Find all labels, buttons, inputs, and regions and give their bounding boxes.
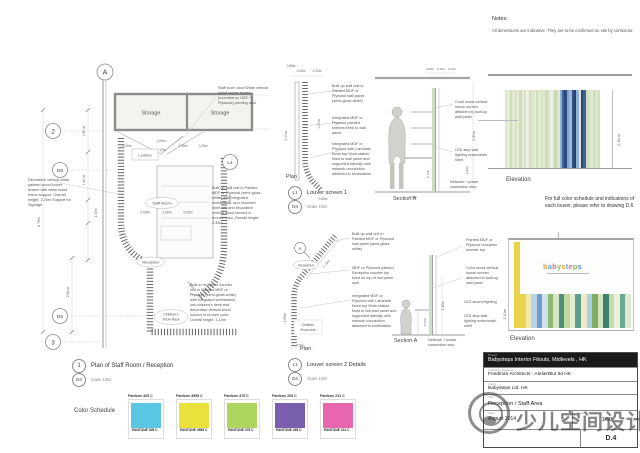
color-swatch-row: Pantone 305 CPANTONE 305 CPantone 3955 C… [128, 394, 356, 439]
elevation1-label: Elevation [506, 177, 531, 183]
color-schedule-label: Color Schedule [74, 408, 115, 414]
dim-text: 0.65M [140, 211, 149, 215]
screen1-section-label: Section A [393, 196, 416, 202]
screen2-note-led-strip: LED strip wall lighting underneath shelf [464, 314, 500, 329]
viewport-title-text: Louver screen 2 Details [307, 362, 366, 368]
project-value: Babysteps Interior Fitouts, Midlevels , … [488, 357, 637, 363]
dim-text: 0.65m [287, 64, 296, 68]
grid-marker-d5: D5 [57, 314, 63, 320]
screen1-note-louver: Color wood vertical louver screen attach… [455, 100, 491, 120]
elevation2-label: Elevation [510, 336, 535, 342]
viewport-scale-text: Scale 1/50 [307, 376, 366, 381]
pantone-swatch-name: PANTONE 375 C [228, 429, 256, 433]
viewport-number-circle: L1 [288, 186, 302, 200]
plan-note-reception-unit: Built-in reception counter unit in Paint… [190, 283, 238, 323]
dim-text: 0.72m [423, 317, 427, 326]
screen2-note-led-accent: LED accent lighting [464, 300, 500, 305]
elevation1-dim: 2.30 m [616, 134, 621, 146]
viewport-sheet-circle: D4 [288, 372, 302, 386]
dim-text: 0.06m [426, 67, 435, 71]
screen2-note-painted-top: Painted MDF or Plywood reception counter… [466, 238, 504, 253]
dim-text: 1.60m [156, 139, 166, 143]
viewport-scale-text: Scale 1/50 [307, 204, 347, 209]
dim-text: 0.80 m [82, 126, 86, 137]
pantone-swatch: Pantone 305 CPANTONE 305 C [128, 394, 164, 439]
dim-text: 1.15m [94, 208, 98, 217]
screen2-note-louver: Color wood vertical louver screen attach… [466, 266, 504, 286]
pantone-swatch-color [179, 403, 209, 428]
dim-text: 0.72m [426, 169, 430, 178]
dim-text: 6.70m [37, 217, 41, 227]
elevation1-floor-line [488, 168, 632, 169]
dim-text: 0.05m [183, 211, 192, 215]
screen1-note-workstation: Integrated MDF or Plywood with Laminate … [332, 142, 372, 177]
dim-text: 1.60 m [82, 175, 86, 186]
elevation2-dim: 1.10m [502, 309, 507, 320]
screen2-plan-label: Plan [300, 346, 311, 352]
pantone-swatch-label: Pantone 375 C [224, 394, 260, 398]
dim-text: 0.13m [437, 67, 446, 71]
dim-text: 0.25m [179, 144, 188, 148]
louver-stripe [598, 90, 600, 168]
elevation1-stripes [505, 90, 600, 168]
dim-text: 0.25m [199, 144, 208, 148]
pantone-swatch-color [131, 403, 161, 428]
plan-note-staff-door: Staff room door White vertical wood louv… [218, 86, 268, 106]
room-label-storage-1: Storage [142, 111, 161, 117]
dim-text: 0.24m [448, 67, 457, 71]
viewport-scale-text: Scale 1/50 [91, 377, 173, 382]
pantone-swatch-card: PANTONE 265 C [272, 399, 308, 439]
viewport-number-circle: 1 [72, 359, 86, 373]
full-color-note: For full color schedule and indications … [545, 196, 635, 210]
room-label-show-rack-1: Children [302, 323, 314, 327]
grid-marker-a: A [103, 70, 108, 77]
pantone-swatch-name: PANTONE 231 C [324, 429, 352, 433]
screen1-plan-label: Plan [286, 174, 297, 180]
room-label-reception: Reception [142, 261, 159, 265]
pantone-swatch: Pantone 231 CPANTONE 231 C [320, 394, 356, 439]
section1-louver-face [432, 88, 435, 192]
babysteps-logo: babysteps [543, 262, 582, 271]
screen2-viewport-title: L1 Louver screen 2 Details D4 Scale 1/50 [288, 358, 366, 385]
pantone-swatch-name: PANTONE 265 C [276, 429, 304, 433]
plan-viewport-title: 1 Plan of Staff Room / Reception D4 Scal… [72, 359, 173, 386]
pantone-swatch-name: PANTONE 305 C [132, 429, 160, 433]
grid-marker-3: 3 [51, 340, 55, 347]
room-label-show-rack-1: Children's [164, 313, 179, 317]
viewport-title-text: Plan of Staff Room / Reception [91, 363, 173, 369]
screen1-note-led: LED strip wall lighting underneath shelf [455, 148, 491, 163]
room-label-reception: Reception [298, 264, 313, 268]
elevation2-wall: babysteps [508, 238, 634, 331]
screen1-note-shelves: Integrated MDF or Plywood painted shelve… [332, 116, 370, 136]
watermark-logo [468, 392, 510, 434]
room-label-show-rack-2: Show Rack [162, 318, 179, 322]
room-label-storage-2: Storage [211, 111, 230, 117]
screen1-viewport-title: L1 Louver screen 1 D4 Scale 1/50 [288, 186, 347, 213]
pantone-swatch-color [227, 403, 257, 428]
client-value: Babysteps Ltd. HK [488, 386, 637, 392]
pantone-swatch-label: Pantone 305 C [128, 394, 164, 398]
dim-text: 0.90m [465, 165, 469, 174]
screen2-note-network: Network + power connection step [428, 338, 468, 348]
louver-stripe [625, 294, 631, 328]
babysteps-logo-tagline [547, 273, 589, 274]
screen2-note-workstation: Integrated MDF or Plywood with Laminate … [352, 294, 398, 329]
section-marker-a: A [299, 246, 302, 251]
pantone-swatch-label: Pantone 265 C [272, 394, 308, 398]
elevation2-stripes [520, 294, 631, 328]
pantone-swatch-label: Pantone 3955 C [176, 394, 212, 398]
notes-body: All dimensions are indicative. They are … [492, 28, 640, 34]
pantone-swatch-card: PANTONE 305 C [128, 399, 164, 439]
viewport-sheet-circle: D4 [72, 373, 86, 387]
viewport-number-circle: L1 [288, 358, 302, 372]
dim-text: 2.30m [472, 131, 476, 141]
dim-text: 1.10m [441, 301, 445, 310]
person-figure [389, 107, 405, 189]
room-label-show-rack-2: Show rack [300, 328, 316, 332]
pantone-swatch-card: PANTONE 3955 C [176, 399, 212, 439]
room-label-staff-room: Staff Room [152, 201, 171, 206]
elevation1-ceiling-line [488, 74, 632, 76]
louver-screen-1-plan-wall [305, 82, 321, 190]
screen1-note-network: Network + power connection step [450, 180, 492, 190]
dim-text: 0.15m [313, 69, 322, 73]
section2-louver-face [429, 255, 432, 335]
grid-marker-l1: L1 [227, 160, 233, 166]
dim-text: 1.06m [162, 211, 171, 215]
pantone-swatch: Pantone 265 CPANTONE 265 C [272, 394, 308, 439]
plan-note-wall-unit: Built up wall unit in Painted MDF or Ply… [212, 186, 262, 226]
watermark-text: 少儿空间设计 [516, 406, 640, 436]
architect-value: Friedman Architects - AtelierBlur ltd HK [488, 372, 637, 378]
title-block-project-row: Project Babysteps Interior Fitouts, Midl… [484, 353, 637, 368]
screen2-note-wall-panel: Built up wall unit in Painted MDF or Ply… [352, 232, 396, 252]
plan-note-left-louver: Decorative vertical white painted wood l… [28, 178, 74, 208]
dim-text: 1.90m [317, 119, 321, 129]
pantone-swatch-color [275, 403, 305, 428]
dim-text: 2.10m [322, 259, 331, 269]
screen2-note-counter-top: MDF or Plywood painted Reception counter… [352, 266, 396, 286]
pantone-swatch: Pantone 375 CPANTONE 375 C [224, 394, 260, 439]
dim-text: 2.10m [284, 131, 288, 141]
dim-text: 1.06m [283, 313, 287, 322]
logo-letter: s [578, 262, 582, 271]
pantone-swatch-card: PANTONE 231 C [320, 399, 356, 439]
viewport-sheet-circle: D4 [288, 200, 302, 214]
drawing-sheet: Notes: All dimensions are indicative. Th… [0, 0, 640, 453]
pantone-swatch: Pantone 3955 CPANTONE 3955 C [176, 394, 212, 439]
screen1-note-wall-panel: Built up wall unit in Painted MDF or Ply… [332, 84, 370, 104]
viewport-title-text: Louver screen 1 [307, 190, 347, 196]
grid-marker-d6: D6 [57, 168, 63, 174]
pantone-swatch-label: Pantone 231 C [320, 394, 356, 398]
screen2-section-label: Section A [394, 338, 417, 344]
grid-marker-2: 2 [51, 129, 55, 136]
pantone-swatch-color [323, 403, 353, 428]
room-label-lockers: Lockers [138, 154, 151, 158]
pantone-swatch-name: PANTONE 3955 C [180, 429, 208, 433]
title-block-client-row: Client Babysteps Ltd. HK [484, 382, 637, 395]
pantone-swatch-card: PANTONE 375 C [224, 399, 260, 439]
child-figure [401, 300, 412, 334]
title-block-architect-row: Architect / Designer Friedman Architects… [484, 368, 637, 382]
notes-title: Notes: [492, 16, 508, 22]
dim-text: 2.85 m [66, 287, 70, 298]
dim-text: 0.06m [297, 69, 306, 73]
